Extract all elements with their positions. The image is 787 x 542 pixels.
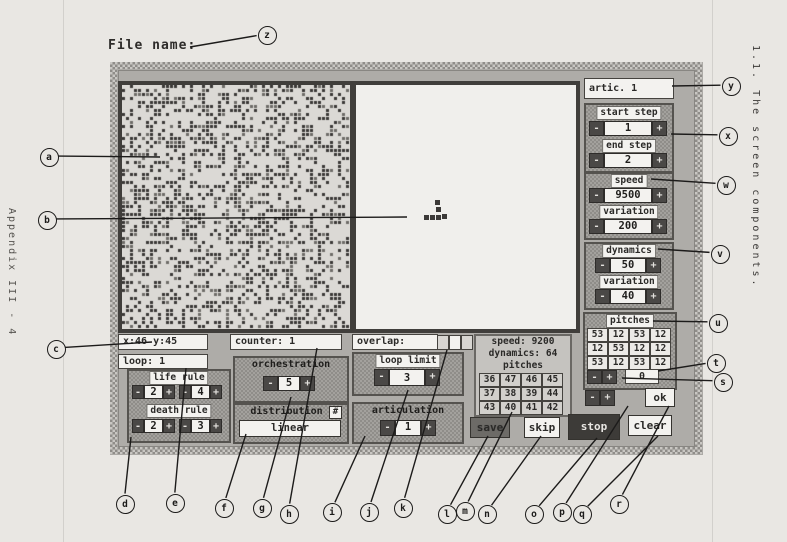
pitches-group: pitches 531253121253121253125312 - + 0 [583,312,677,390]
dynamics-variation-minus-button[interactable]: - [595,289,610,304]
clear-button[interactable]: clear [628,415,672,436]
death-rule-max-plus-button[interactable]: + [210,419,222,433]
speed-minus-button[interactable]: - [589,188,604,203]
end-step-value: 2 [604,153,652,168]
orchestration-stepper: - 5 + [263,376,315,391]
loop-limit-group: loop limit - 3 + [352,352,464,396]
orchestration-value: 5 [278,376,300,391]
pitch-cell: 46 [521,373,542,387]
status-pitches-grid: 364746453738394443404142 [479,373,563,415]
pitch-transpose-value: 0 [625,369,659,384]
dynamics-value: 50 [610,258,646,273]
orchestration-plus-button[interactable]: + [300,376,315,391]
pitch-cell: 45 [542,373,563,387]
ok-button[interactable]: ok [645,388,675,407]
callout-a: a [40,148,59,167]
rules-group: life rule - 2 + - 4 + death rule - 2 + -… [127,369,231,443]
appendix-label: Appendix III - 4 [6,208,17,336]
orchestration-minus-button[interactable]: - [263,376,278,391]
speed-variation-label: variation [599,205,658,219]
loop-limit-value: 3 [389,369,425,386]
pitches-label: pitches [606,314,654,328]
life-grid[interactable] [122,85,350,329]
cell-dot [436,207,441,212]
status-box: speed: 9200 dynamics: 64 pitches 3647464… [474,334,572,417]
overlap-box-3[interactable] [461,335,473,350]
articulation-group: articulation - 1 + [352,402,464,444]
pitch-cell: 37 [479,387,500,401]
pitch-cell: 12 [650,328,671,342]
pitch-cell: 53 [587,328,608,342]
dynamics-variation-value: 40 [610,289,646,304]
dynamics-variation-label: variation [599,275,658,289]
callout-s: s [714,373,733,392]
callout-t: t [707,354,726,373]
life-rule-max-minus-button[interactable]: - [179,385,191,399]
distribution-value-button[interactable]: linear [239,420,341,437]
pitch-cell: 12 [608,328,629,342]
pitches-grid[interactable]: 531253121253121253125312 [587,328,671,370]
score-canvas[interactable] [356,85,576,329]
pitch-cell: 39 [521,387,542,401]
speed-value: 9500 [604,188,652,203]
articulation-value: 1 [395,420,421,436]
cell-dot [424,215,429,220]
callout-i: i [323,503,342,522]
octave-stepper: - + [585,390,619,406]
pitch-cell: 44 [542,387,563,401]
speed-variation-stepper: - 200 + [589,219,667,234]
pitch-cell: 36 [479,373,500,387]
callout-f: f [215,499,234,518]
pitch-cell: 12 [587,342,608,356]
callout-k: k [394,499,413,518]
step-range-group: start step - 1 + end step - 2 + [584,103,674,173]
cell-dot [435,200,440,205]
pitch-transpose-stepper: - + [587,370,617,384]
life-rule-min-plus-button[interactable]: + [163,385,175,399]
callout-x: x [719,127,738,146]
start-step-label: start step [596,106,661,120]
articulation-label: articulation [372,405,444,417]
callout-j: j [360,503,379,522]
pitch-cell: 53 [608,342,629,356]
overlap-label: overlap: [352,334,438,350]
callout-u: u [709,314,728,333]
file-name-label: File name: [108,38,196,53]
dynamics-stepper: - 50 + [595,258,661,273]
orchestration-group: orchestration - 5 + [233,356,349,403]
pitch-cell: 40 [500,401,521,415]
death-rule-min-value: 2 [144,419,163,433]
death-rule-max-minus-button[interactable]: - [179,419,191,433]
dynamics-group: dynamics - 50 + variation - 40 + [584,242,674,310]
loop-display: loop: 1 [118,354,208,369]
speed-variation-plus-button[interactable]: + [652,219,667,234]
loop-limit-minus-button[interactable]: - [374,369,389,386]
overlap-box-2[interactable] [449,335,461,350]
callout-q: q [573,505,592,524]
pitch-cell: 12 [650,342,671,356]
pitch-transpose-minus-button[interactable]: - [587,370,602,384]
callout-n: n [478,505,497,524]
cell-dot [442,214,447,219]
skip-button[interactable]: skip [524,417,560,438]
coords-display: x:46 y:45 [118,334,208,350]
dynamics-variation-stepper: - 40 + [595,289,661,304]
death-rule-min-stepper: - 2 + [132,419,175,433]
pitch-cell: 38 [500,387,521,401]
artic-display: artic. 1 [584,78,674,99]
pitch-cell: 47 [500,373,521,387]
callout-m: m [456,502,475,521]
octave-minus-button[interactable]: - [585,390,600,406]
life-rule-min-stepper: - 2 + [132,385,175,399]
callout-h: h [280,505,299,524]
cell-dot [430,215,435,220]
pitch-transpose-plus-button[interactable]: + [602,370,617,384]
start-step-stepper: - 1 + [589,121,667,136]
octave-plus-button[interactable]: + [600,390,615,406]
life-rule-min-value: 2 [144,385,163,399]
death-rule-label: death rule [146,404,211,418]
loop-limit-plus-button[interactable]: + [425,369,440,386]
start-step-value: 1 [604,121,652,136]
dynamics-minus-button[interactable]: - [595,258,610,273]
life-rule-max-stepper: - 4 + [179,385,222,399]
articulation-stepper: - 1 + [380,420,436,436]
speed-label: speed [611,174,648,188]
life-rule-max-value: 4 [191,385,210,399]
death-rule-min-plus-button[interactable]: + [163,419,175,433]
pitch-cell: 12 [608,356,629,370]
dynamics-variation-plus-button[interactable]: + [646,289,661,304]
callout-y: y [722,77,741,96]
callout-p: p [553,503,572,522]
callout-r: r [610,495,629,514]
speed-stepper: - 9500 + [589,188,667,203]
loop-limit-label: loop limit [375,354,440,368]
section-label: 1.1. The screen components. [750,45,761,289]
callout-v: v [711,245,730,264]
callout-d: d [116,495,135,514]
orchestration-label: orchestration [252,359,330,371]
pitch-cell: 42 [542,401,563,415]
callout-g: g [253,499,272,518]
pitch-cell: 53 [629,328,650,342]
pitch-cell: 12 [629,342,650,356]
callout-z: z [258,26,277,45]
counter-display: counter: 1 [230,334,342,350]
status-speed: speed: 9200 [476,336,570,348]
scanned-page: Appendix III - 4 1.1. The screen compone… [0,0,787,542]
callout-o: o [525,505,544,524]
loop-limit-stepper: - 3 + [374,369,440,386]
death-rule-max-value: 3 [191,419,210,433]
speed-plus-button[interactable]: + [652,188,667,203]
death-rule-max-stepper: - 3 + [179,419,222,433]
life-rule-label: life rule [149,371,208,385]
distribution-hash-button[interactable]: # [329,406,342,419]
start-step-plus-button[interactable]: + [652,121,667,136]
end-step-minus-button[interactable]: - [589,153,604,168]
page-fold-line [63,0,64,542]
pitch-cell: 53 [629,356,650,370]
dynamics-plus-button[interactable]: + [646,258,661,273]
speed-variation-value: 200 [604,219,652,234]
stop-button[interactable]: stop [568,414,620,440]
status-dynamics: dynamics: 64 [476,348,570,360]
status-pitches-label: pitches [476,360,570,372]
callout-b: b [38,211,57,230]
end-step-stepper: - 2 + [589,153,667,168]
end-step-plus-button[interactable]: + [652,153,667,168]
articulation-minus-button[interactable]: - [380,420,395,436]
dynamics-label: dynamics [602,244,656,258]
life-rule-min-minus-button[interactable]: - [132,385,144,399]
death-rule-min-minus-button[interactable]: - [132,419,144,433]
pitch-cell: 41 [521,401,542,415]
save-button[interactable]: save [470,417,510,438]
callout-l: l [438,505,457,524]
distribution-group: distribution # linear [233,403,349,444]
callout-e: e [166,494,185,513]
life-rule-max-plus-button[interactable]: + [210,385,222,399]
page-edge-line [712,0,713,542]
start-step-minus-button[interactable]: - [589,121,604,136]
articulation-plus-button[interactable]: + [421,420,436,436]
distribution-label: distribution [250,406,322,418]
speed-variation-minus-button[interactable]: - [589,219,604,234]
pitch-cell: 12 [650,356,671,370]
callout-c: c [47,340,66,359]
pitch-cell: 53 [587,356,608,370]
pitch-cell: 43 [479,401,500,415]
end-step-label: end step [602,139,656,153]
callout-w: w [717,176,736,195]
cell-dot [436,215,441,220]
overlap-box-1[interactable] [437,335,449,350]
speed-group: speed - 9500 + variation - 200 + [584,172,674,240]
